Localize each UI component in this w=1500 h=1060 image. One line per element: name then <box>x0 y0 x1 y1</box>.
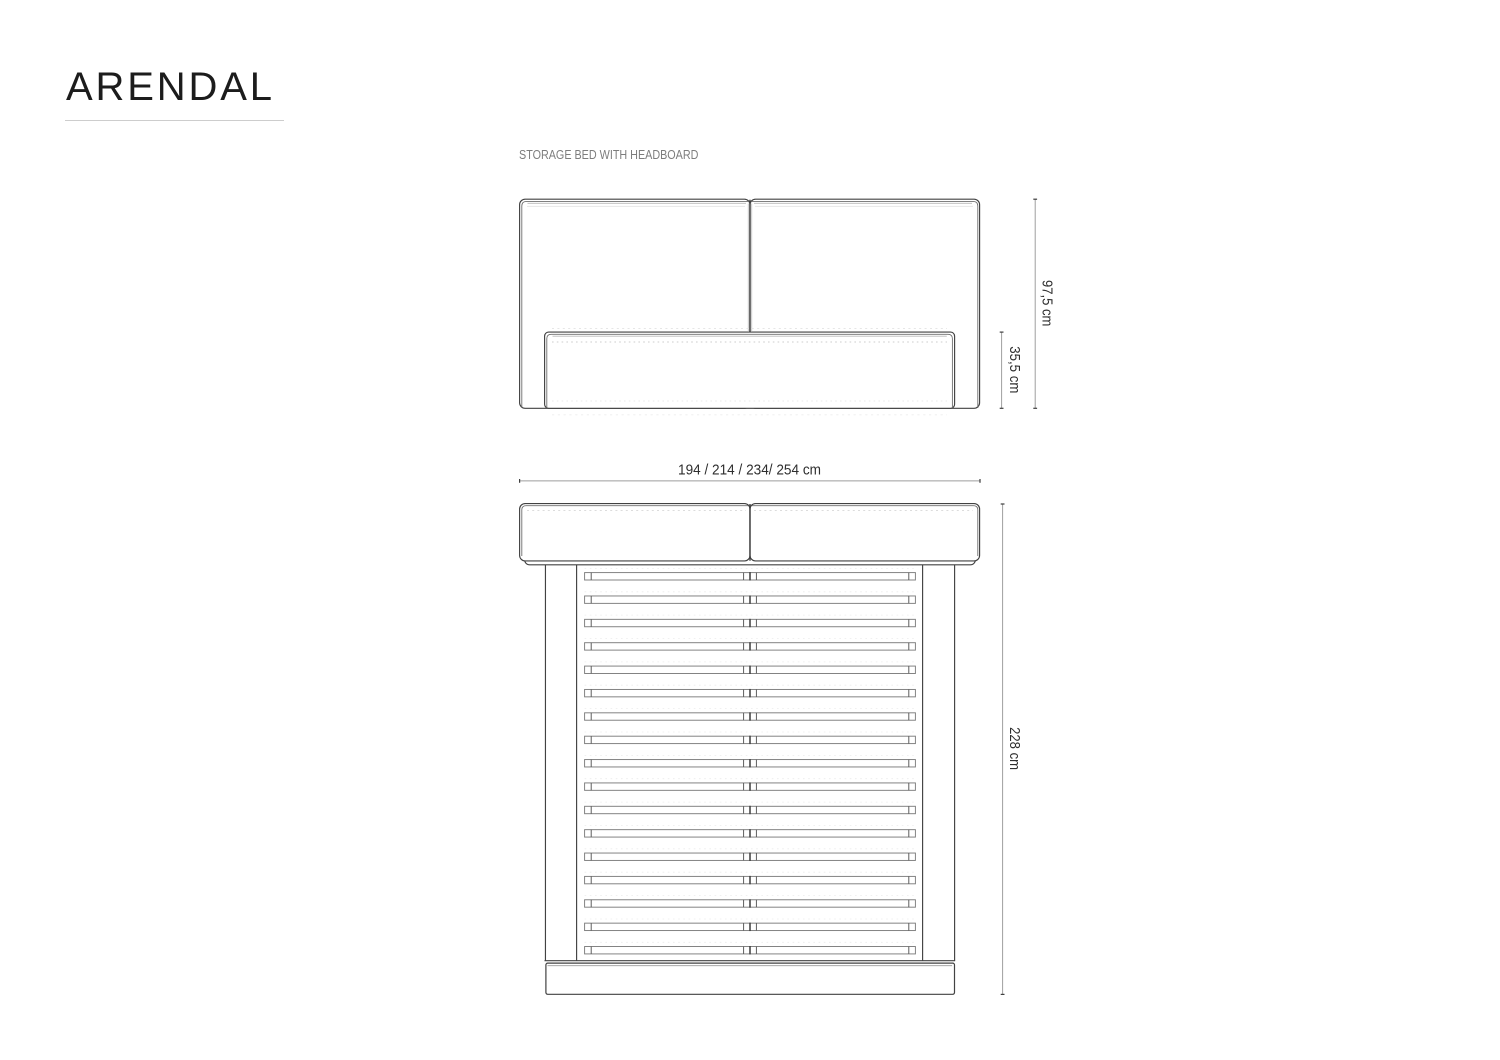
svg-text:194 / 214 / 234/ 254 cm: 194 / 214 / 234/ 254 cm <box>678 463 821 479</box>
svg-text:35,5 cm: 35,5 cm <box>1006 346 1022 393</box>
svg-text:228 cm: 228 cm <box>1006 727 1022 770</box>
svg-text:97,5 cm: 97,5 cm <box>1038 280 1054 326</box>
